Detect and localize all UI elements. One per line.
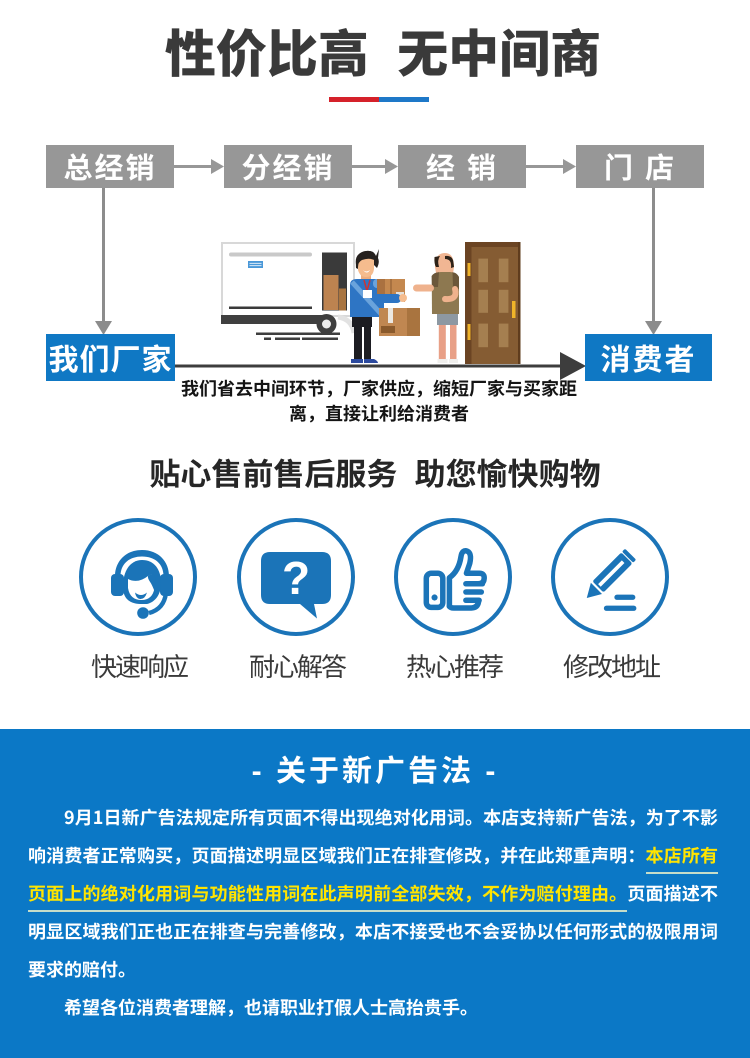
svg-text:?: ? [282,552,310,604]
